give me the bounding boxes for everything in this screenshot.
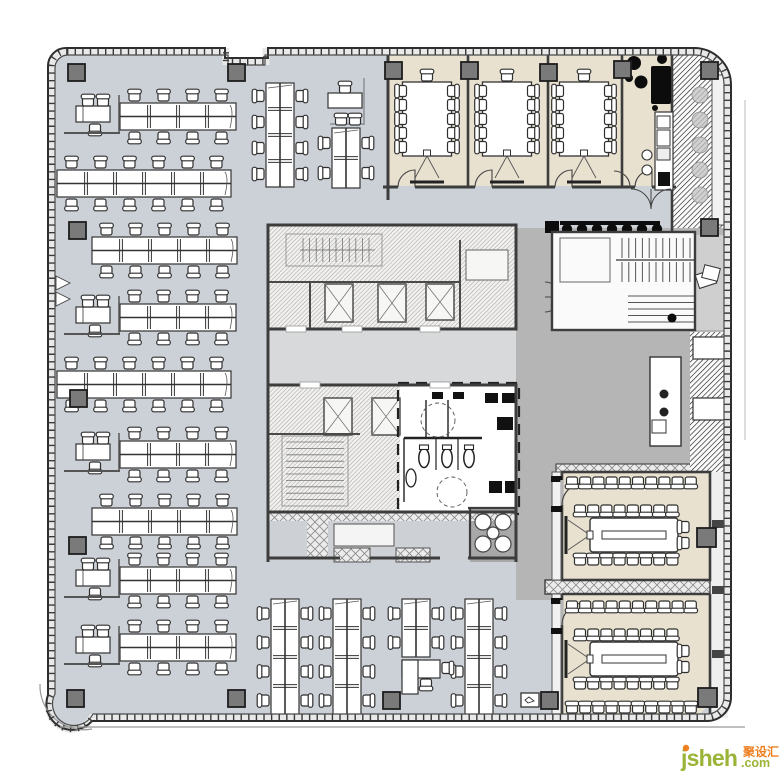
svg-text:.com: .com — [741, 756, 770, 770]
